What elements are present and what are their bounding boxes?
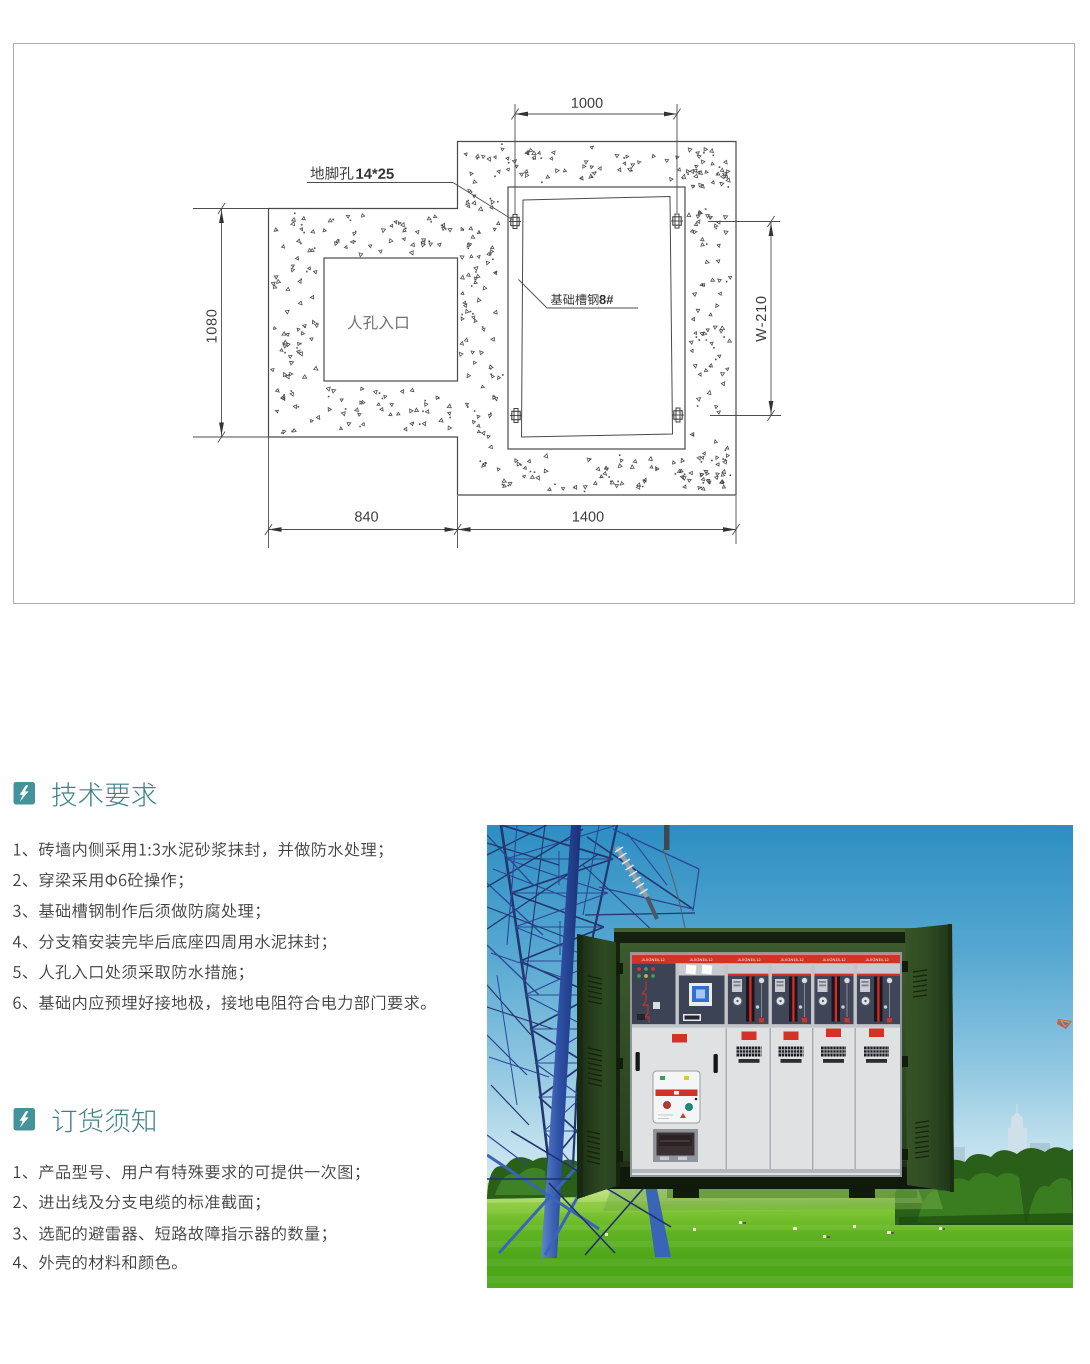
- svg-text:JLXGN15-12: JLXGN15-12: [641, 957, 665, 962]
- svg-text:JLXGN15-12: JLXGN15-12: [865, 957, 889, 962]
- svg-text:JLXGN15-12: JLXGN15-12: [689, 957, 713, 962]
- svg-text:JLXGN15-12: JLXGN15-12: [822, 957, 846, 962]
- svg-text:JLXGN15-12: JLXGN15-12: [737, 957, 761, 962]
- svg-text:JLXGN15-12: JLXGN15-12: [780, 957, 804, 962]
